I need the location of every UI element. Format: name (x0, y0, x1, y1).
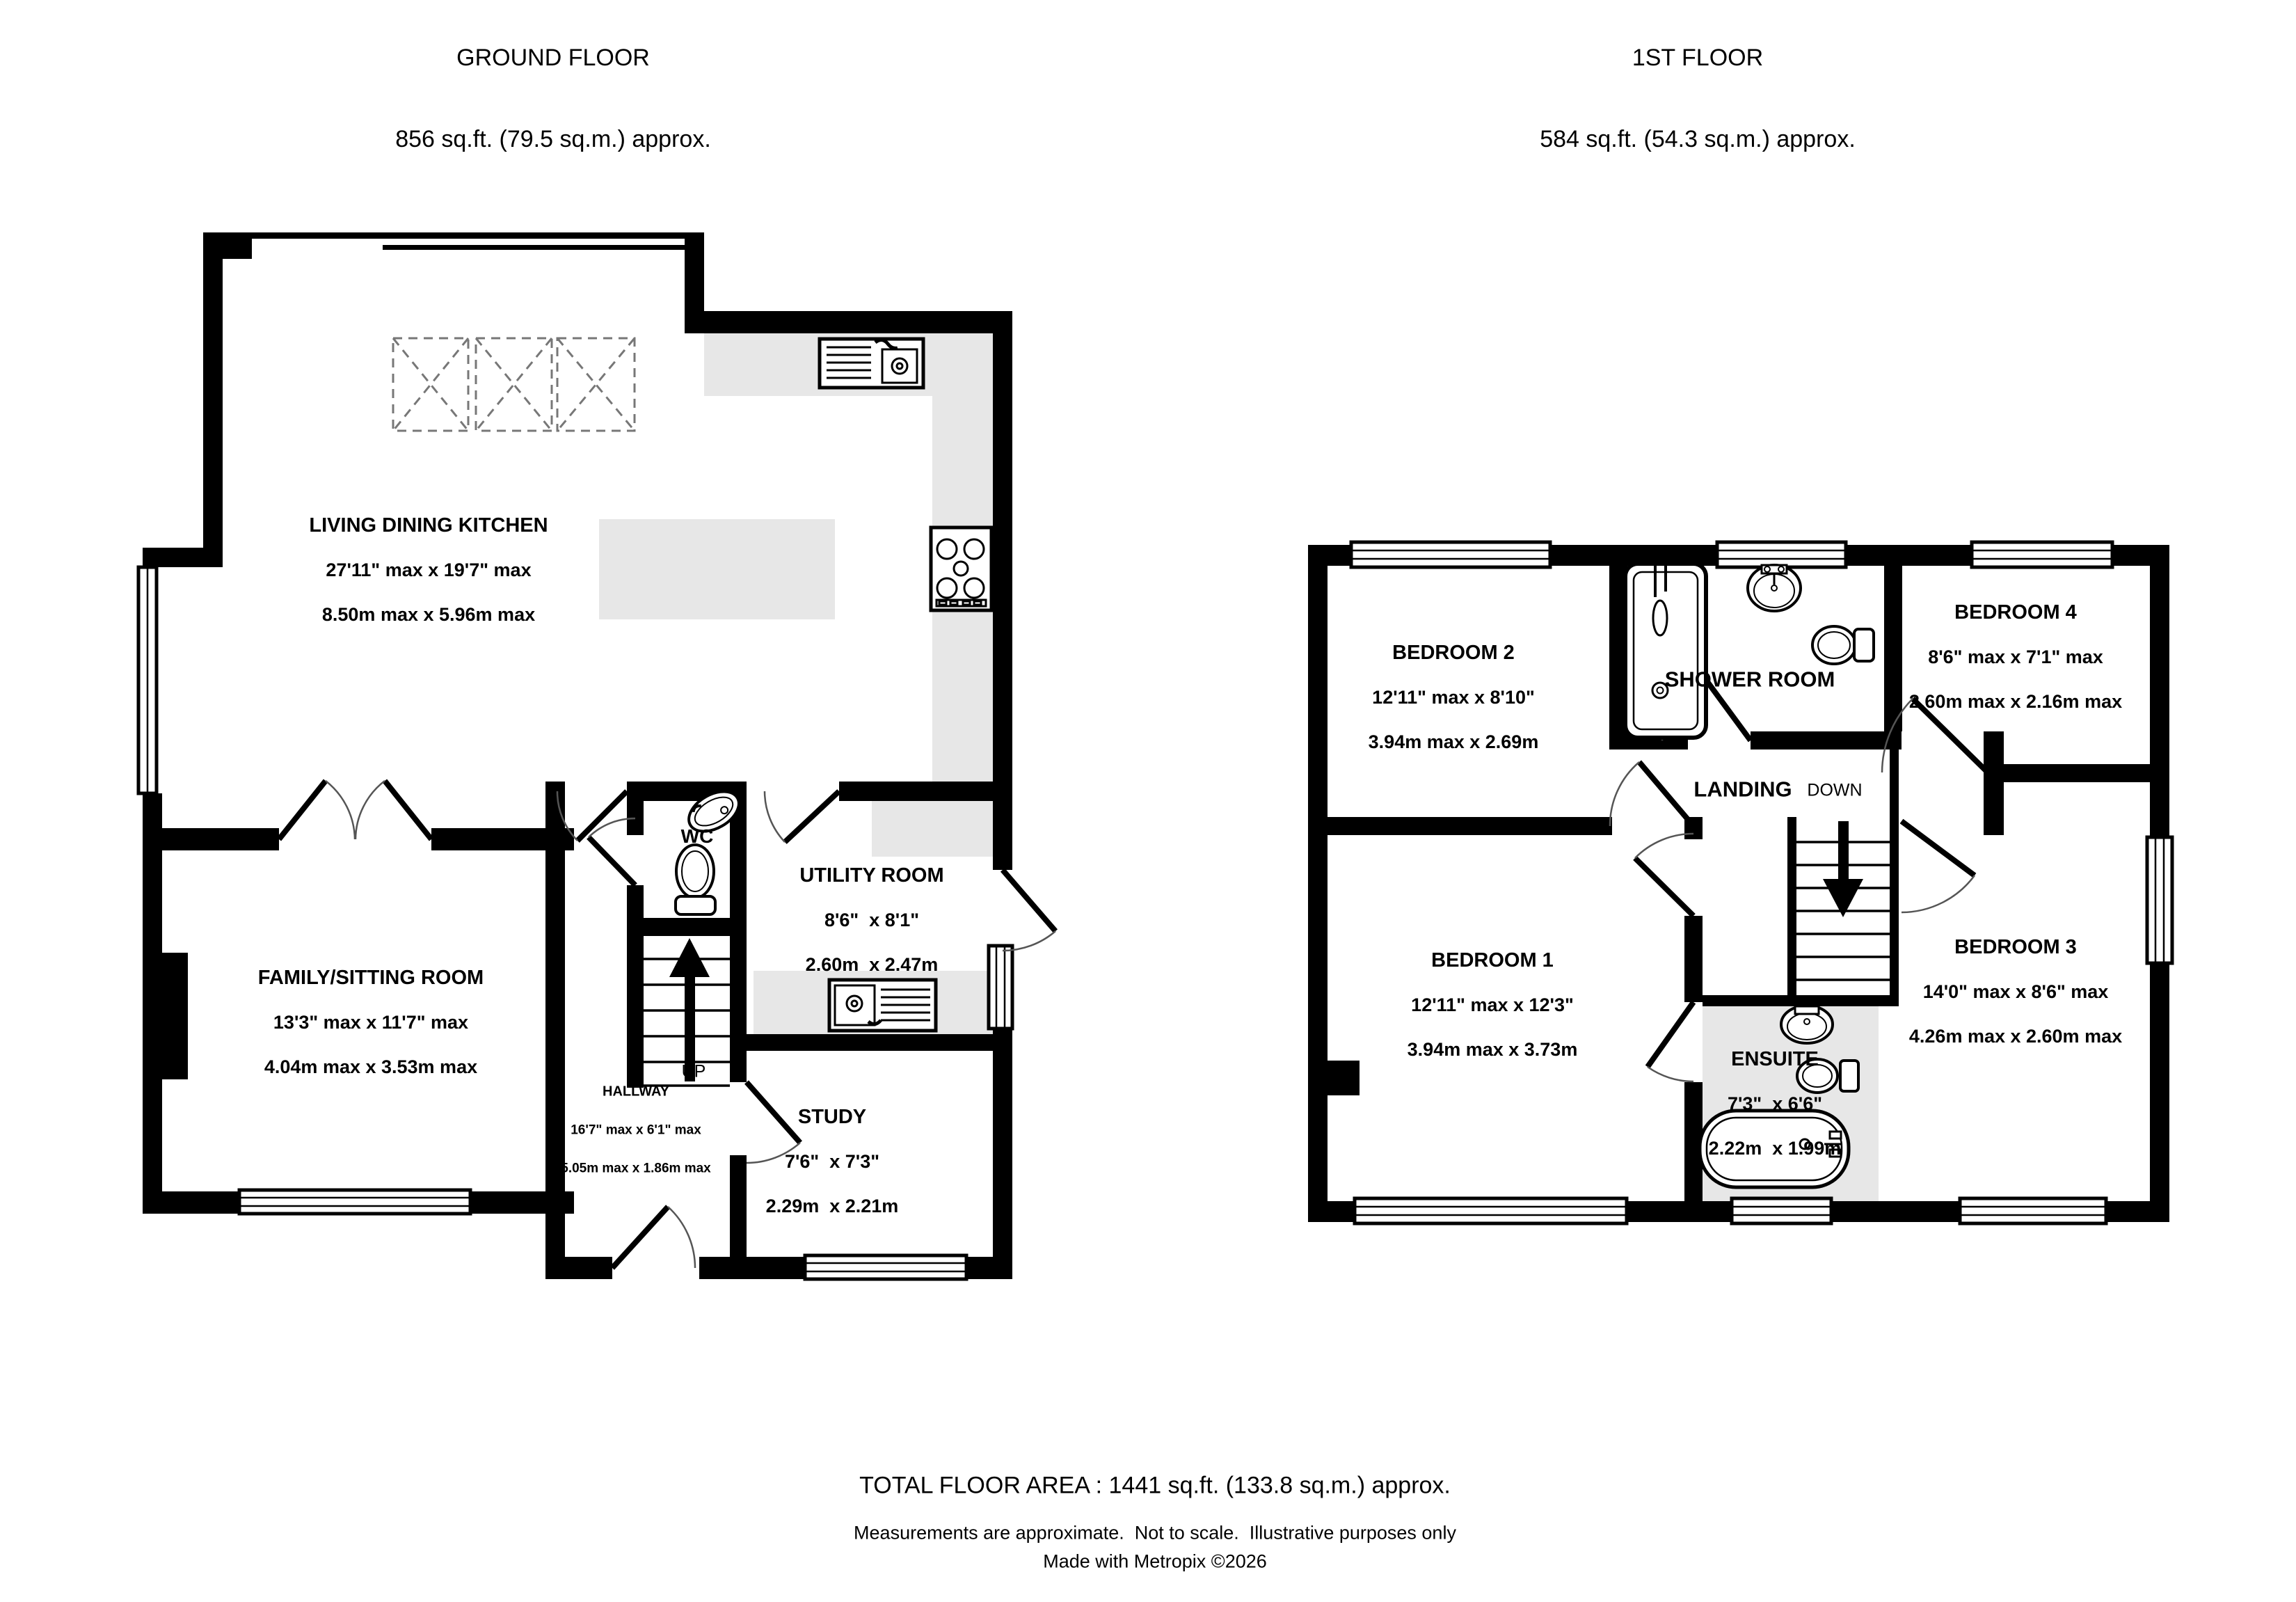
window (805, 1255, 966, 1279)
rooflight-icons (393, 338, 635, 431)
first-floor-area: 584 sq.ft. (54.3 sq.m.) approx. (1540, 127, 1856, 154)
room-label-bedroom-2: BEDROOM 2 12'11" max x 8'10" 3.94m max x… (1369, 618, 1539, 764)
ground-floor-area: 856 sq.ft. (79.5 sq.m.) approx. (395, 127, 711, 154)
room-label-landing: LANDING (1693, 777, 1792, 800)
room-label-family-sitting-room: FAMILY/SITTING ROOM 13'3" max x 11'7" ma… (258, 943, 484, 1089)
ground-floor-title: GROUND FLOOR 856 sq.ft. (79.5 sq.m.) app… (395, 0, 711, 181)
window (1972, 542, 2112, 567)
door (1648, 1002, 1693, 1081)
door (1003, 870, 1055, 951)
window (1355, 1198, 1627, 1223)
room-label-living-dining-kitchen: LIVING DINING KITCHEN 27'11" max x 19'7"… (309, 491, 548, 637)
first-floor-title: 1ST FLOOR 584 sq.ft. (54.3 sq.m.) approx… (1540, 0, 1856, 181)
room-label-bedroom-4: BEDROOM 4 8'6" max x 7'1" max 2.60m max … (1909, 578, 2122, 724)
stairs-down (1796, 821, 1890, 997)
window (239, 1190, 470, 1214)
wc-toilet-icon (676, 845, 715, 914)
window (138, 567, 157, 793)
floorplan-canvas: GROUND FLOOR 856 sq.ft. (79.5 sq.m.) app… (0, 0, 2296, 1602)
door (1610, 762, 1693, 826)
kitchen-sink-icon (820, 339, 923, 388)
window (1351, 542, 1550, 567)
stairs-up-label: UP (682, 1063, 706, 1081)
room-label-utility-room: UTILITY ROOM 8'6" x 8'1" 2.60m x 2.47m (799, 841, 943, 987)
french-doors (279, 781, 431, 839)
room-label-shower-room: SHOWER ROOM (1665, 667, 1835, 690)
room-label-ensuite: ENSUITE 7'3" x 6'6" 2.22m x 1.99m (1709, 1024, 1842, 1171)
utility-sink-icon (829, 980, 936, 1031)
shower-icon (1625, 564, 1706, 738)
door (1635, 834, 1693, 916)
room-label-bedroom-3: BEDROOM 3 14'0" max x 8'6" max 4.26m max… (1909, 912, 2122, 1058)
window (1717, 542, 1846, 567)
window (1960, 1198, 2106, 1223)
floorplan-drawing (0, 0, 2296, 1602)
first-floor-title-text: 1ST FLOOR (1540, 45, 1856, 72)
window (989, 946, 1012, 1029)
room-label-bedroom-1: BEDROOM 1 12'11" max x 12'3" 3.94m max x… (1408, 926, 1578, 1072)
door (765, 791, 839, 842)
hob-icon (931, 528, 991, 610)
disclaimer-text: Measurements are approximate. Not to sca… (854, 1523, 1456, 1543)
front-door (612, 1207, 695, 1268)
shower-room-toilet-icon (1812, 626, 1874, 664)
room-label-study: STUDY 7'6" x 7'3" 2.29m x 2.21m (766, 1082, 899, 1228)
room-label-wc: WC (681, 826, 714, 847)
total-floor-area: TOTAL FLOOR AREA : 1441 sq.ft. (133.8 sq… (859, 1473, 1451, 1499)
window (1732, 1198, 1831, 1223)
credit-text: Made with Metropix ©2026 (1043, 1551, 1267, 1571)
stairs-down-label: DOWN (1807, 782, 1862, 800)
door (1902, 821, 1975, 912)
shower-room-basin-icon (1748, 565, 1801, 611)
ground-floor-title-text: GROUND FLOOR (395, 45, 711, 72)
window (2147, 837, 2172, 963)
down-arrow-icon (1823, 821, 1863, 917)
